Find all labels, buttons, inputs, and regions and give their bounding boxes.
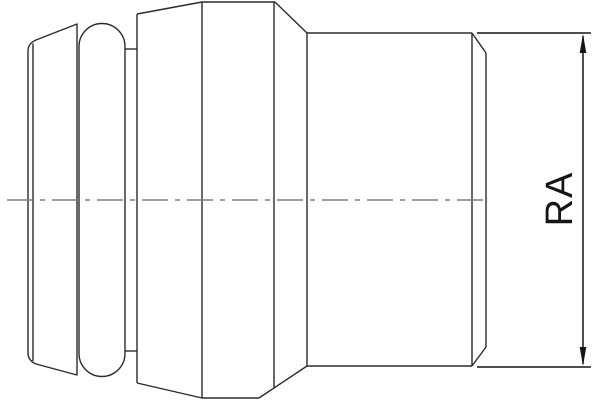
arrowhead-up-icon — [580, 34, 587, 53]
dimension-label-ra: RA — [539, 172, 581, 227]
end-chamfer-bottom — [472, 347, 486, 366]
arrowhead-down-icon — [580, 347, 587, 366]
end-chamfer-top — [472, 33, 486, 53]
hex-body-top-right-chamfer — [275, 2, 307, 33]
dimension-ra: RA — [477, 33, 591, 367]
technical-drawing: RA — [0, 0, 600, 400]
hex-body-top-left-slant — [137, 2, 202, 14]
hex-body-bottom-left-slant — [137, 383, 202, 398]
hex-body-bottom-right-chamfer — [259, 366, 307, 398]
drawing-canvas: RA — [0, 0, 600, 400]
